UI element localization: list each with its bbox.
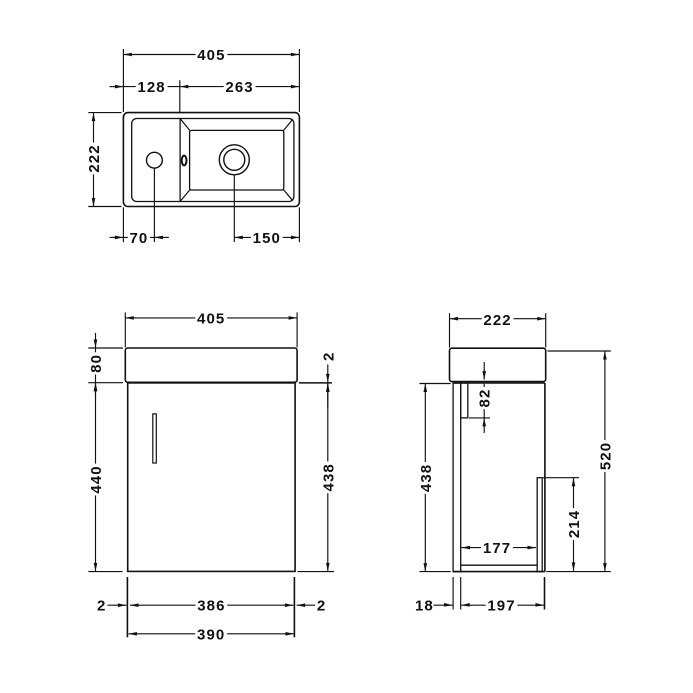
svg-text:440: 440 [88, 465, 105, 493]
svg-text:405: 405 [197, 310, 225, 327]
svg-text:222: 222 [86, 144, 103, 172]
svg-text:2: 2 [97, 598, 106, 615]
svg-text:2: 2 [317, 598, 326, 615]
svg-text:405: 405 [197, 47, 225, 64]
svg-text:438: 438 [320, 463, 337, 491]
svg-text:70: 70 [129, 230, 148, 247]
svg-text:128: 128 [137, 79, 165, 96]
svg-text:197: 197 [487, 598, 515, 615]
svg-text:390: 390 [197, 626, 225, 643]
svg-text:177: 177 [483, 540, 511, 557]
svg-text:386: 386 [197, 598, 225, 615]
svg-text:82: 82 [477, 389, 494, 408]
svg-text:2: 2 [320, 351, 337, 360]
svg-text:520: 520 [597, 442, 614, 470]
svg-text:18: 18 [415, 598, 434, 615]
svg-text:263: 263 [225, 79, 253, 96]
svg-text:222: 222 [483, 312, 511, 329]
svg-text:80: 80 [88, 354, 105, 373]
svg-text:150: 150 [253, 230, 281, 247]
svg-text:214: 214 [566, 510, 583, 538]
svg-text:438: 438 [418, 464, 435, 492]
